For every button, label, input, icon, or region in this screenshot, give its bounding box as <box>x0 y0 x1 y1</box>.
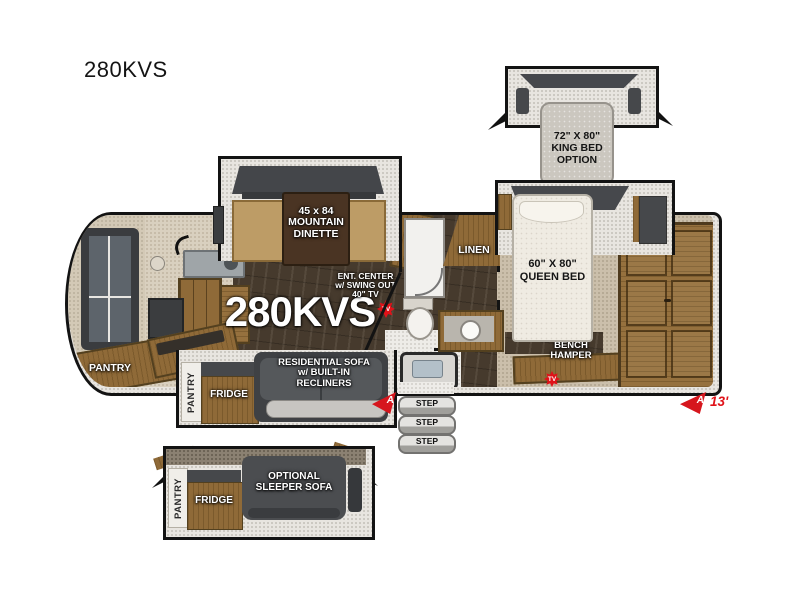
dinette-label: 45 x 84 MOUNTAIN DINETTE <box>284 194 348 240</box>
option-fridge-label: FRIDGE <box>187 496 241 507</box>
queen-nightstand-left <box>498 194 512 230</box>
wardrobe-panel <box>671 280 712 326</box>
toilet-icon <box>406 307 434 340</box>
queen-line2: QUEEN BED <box>514 271 591 284</box>
entry-steps: STEP STEP STEP <box>396 396 456 454</box>
awning-marker-door: A <box>372 392 396 414</box>
galley-fridge: FRIDGE <box>201 362 257 422</box>
sofa-line3: RECLINERS <box>262 379 386 389</box>
galley-pantry-label: PANTRY <box>186 372 197 413</box>
pantry-front-label: PANTRY <box>78 363 142 374</box>
speaker-icon <box>150 256 165 271</box>
king-bed-label: 72" X 80" KING BED OPTION <box>542 104 612 166</box>
sleeper-sofa: OPTIONAL SLEEPER SOFA <box>242 456 346 520</box>
king-bed-line1: 72" X 80" <box>542 130 612 142</box>
dinette-slide: 45 x 84 MOUNTAIN DINETTE <box>218 156 402 266</box>
king-bed-line2: KING BED <box>542 142 612 154</box>
ent-center-line3: 40" TV <box>318 290 413 299</box>
residential-sofa-label: RESIDENTIAL SOFA w/ BUILT-IN RECLINERS <box>262 358 386 389</box>
queen-pillow <box>519 201 584 223</box>
sleeper-armrest <box>348 468 362 512</box>
tv-starburst-icon-bedroom: TV <box>544 371 560 387</box>
awning-arrow-letter: A <box>697 395 704 406</box>
wardrobe-panel <box>671 230 712 276</box>
sofa-footrest <box>266 400 386 418</box>
shower <box>404 218 445 298</box>
galley-fridge-lid <box>201 362 257 376</box>
sleeper-sofa-label: OPTIONAL SLEEPER SOFA <box>242 456 346 494</box>
sofa-line2: w/ BUILT-IN <box>262 368 386 378</box>
king-bed-option-slide: 72" X 80" KING BED OPTION <box>488 62 673 187</box>
king-bed: 72" X 80" KING BED OPTION <box>540 102 614 186</box>
queen-dresser <box>639 196 667 244</box>
linen-label: LINEN <box>449 245 499 256</box>
wardrobe-panel <box>671 330 712 378</box>
king-headboard <box>520 74 638 88</box>
galley-fridge-label: FRIDGE <box>201 390 257 401</box>
option-pantry: PANTRY <box>168 468 188 528</box>
page-title: 280KVS <box>84 57 168 83</box>
step-3: STEP <box>398 434 456 454</box>
dinette-bench-left <box>232 200 286 262</box>
king-pillow-right <box>628 88 641 114</box>
awning-length-label: 13' <box>710 394 728 409</box>
option-pantry-label: PANTRY <box>173 478 184 519</box>
option-fridge: FRIDGE <box>187 470 241 528</box>
awning-marker-rear: A 13' <box>680 392 740 414</box>
king-bed-line3: OPTION <box>542 154 612 166</box>
vanity-sink <box>460 320 481 341</box>
bench-line2: HAMPER <box>538 351 604 361</box>
dinette-line2: MOUNTAIN <box>284 217 348 228</box>
queen-bed-slide: 60" X 80" QUEEN BED <box>495 180 675 340</box>
step-2: STEP <box>398 415 456 435</box>
queen-line1: 60" X 80" <box>514 258 591 271</box>
entry-door-opening <box>398 382 454 394</box>
king-pillow-left <box>516 88 529 114</box>
step-1: STEP <box>398 396 456 416</box>
floorplan-canvas: 280KVS 72" X 80" KING BED OPTION <box>0 0 800 600</box>
galley-pantry: PANTRY <box>181 362 202 422</box>
dinette-table: 45 x 84 MOUNTAIN DINETTE <box>282 192 350 266</box>
option-fridge-lid <box>187 470 241 482</box>
bench-hamper-label: BENCH HAMPER <box>538 341 604 362</box>
front-window-panes <box>89 236 131 342</box>
shower-glass <box>415 268 443 296</box>
dinette-seatbacks <box>232 166 384 194</box>
dinette-line3: DINETTE <box>284 229 348 240</box>
queen-bed: 60" X 80" QUEEN BED <box>512 194 593 342</box>
sleeper-line2: SLEEPER SOFA <box>242 483 346 494</box>
sleeper-seat-front <box>248 508 340 518</box>
dinette-window <box>213 206 224 244</box>
front-window <box>81 228 139 350</box>
sleeper-option-slide: PANTRY FRIDGE OPTIONAL SLEEPER SOFA <box>150 444 398 540</box>
entry-mat <box>412 360 443 378</box>
awning-arrow-letter: A <box>387 395 394 406</box>
